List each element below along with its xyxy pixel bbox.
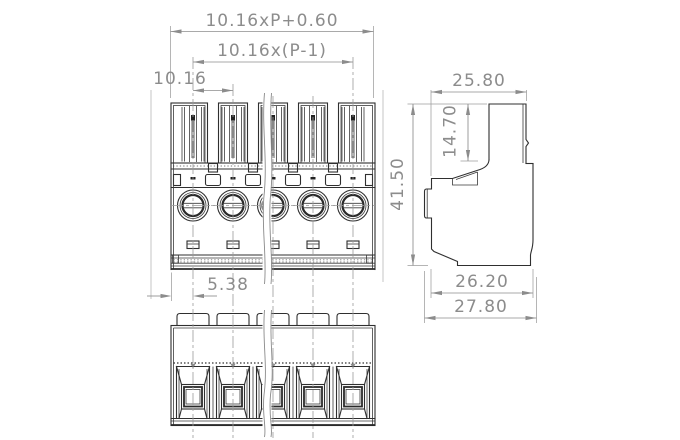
dimension-pole-span: 10.16x(P-1) bbox=[193, 41, 353, 64]
bottom-view-break-lines bbox=[263, 310, 273, 437]
dimension-edge-to-first-pole: 5.38 bbox=[147, 273, 249, 302]
dim-pitch-label: 10.16 bbox=[153, 69, 207, 89]
dim-edge-to-first-pole-label: 5.38 bbox=[207, 275, 249, 295]
dimension-body-depth: 26.20 bbox=[431, 269, 533, 298]
dim-body-depth-label: 26.20 bbox=[455, 272, 509, 292]
dim-side-top-width-label: 25.80 bbox=[452, 71, 506, 91]
dim-overall-width-label: 10.16xP+0.60 bbox=[205, 11, 338, 31]
dim-plug-height-label: 14.70 bbox=[441, 104, 461, 158]
dimension-plug-height: 14.70 bbox=[408, 104, 488, 161]
front-view-break-lines bbox=[263, 93, 272, 284]
drawing-canvas: 10.16xP+0.60 10.16x(P-1) 10.16 5.38 25.8… bbox=[0, 0, 680, 440]
dim-pole-span-label: 10.16x(P-1) bbox=[217, 41, 327, 61]
dimension-total-height: 41.50 bbox=[388, 104, 428, 266]
dim-overall-depth-label: 27.80 bbox=[454, 297, 508, 317]
technical-drawing: 10.16xP+0.60 10.16x(P-1) 10.16 5.38 25.8… bbox=[0, 0, 680, 440]
dim-total-height-label: 41.50 bbox=[388, 157, 408, 211]
